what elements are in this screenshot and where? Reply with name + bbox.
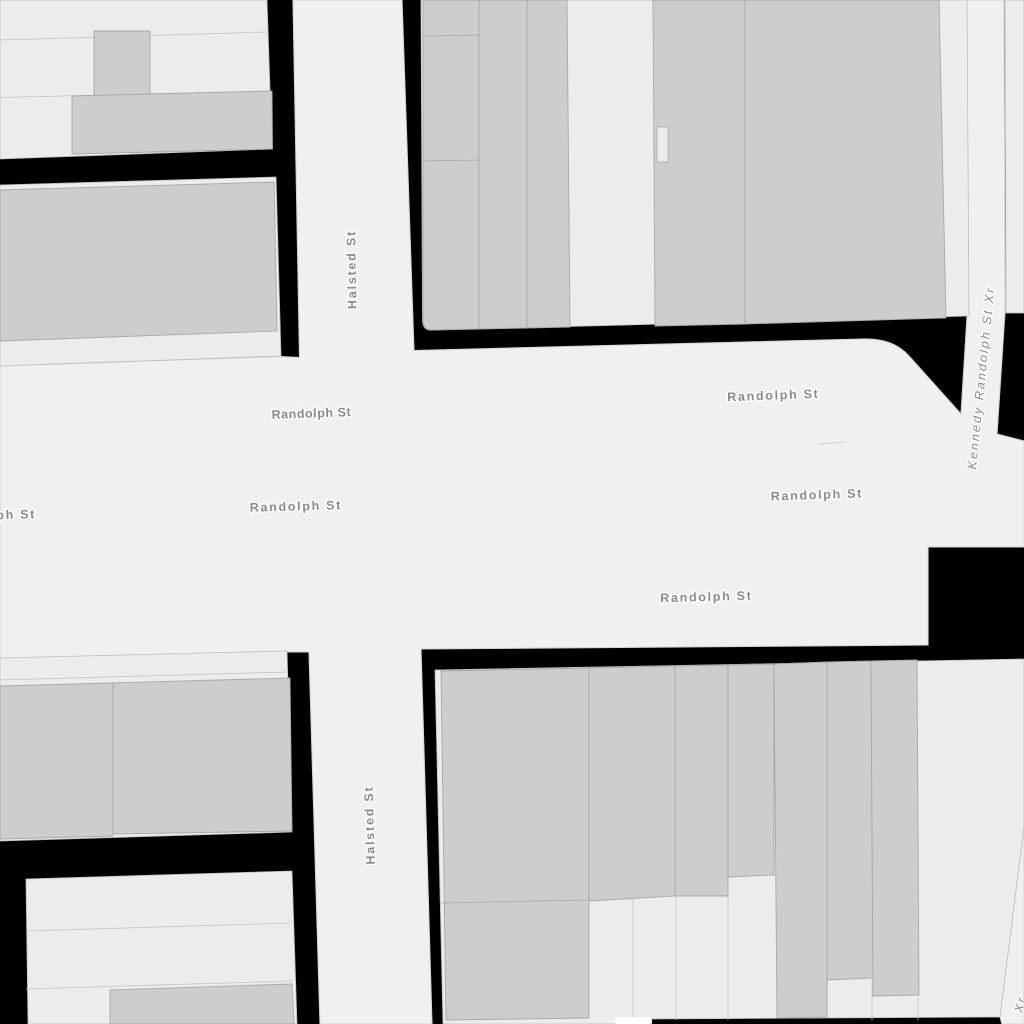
- svg-text:Halsted St: Halsted St: [362, 785, 378, 864]
- svg-text:Randolph St: Randolph St: [660, 589, 753, 606]
- svg-text:Halsted St: Halsted St: [344, 230, 359, 309]
- svg-text:Randolph St: Randolph St: [271, 405, 351, 422]
- svg-text:Randolph St: Randolph St: [0, 507, 36, 524]
- svg-text:Randolph St: Randolph St: [250, 498, 343, 515]
